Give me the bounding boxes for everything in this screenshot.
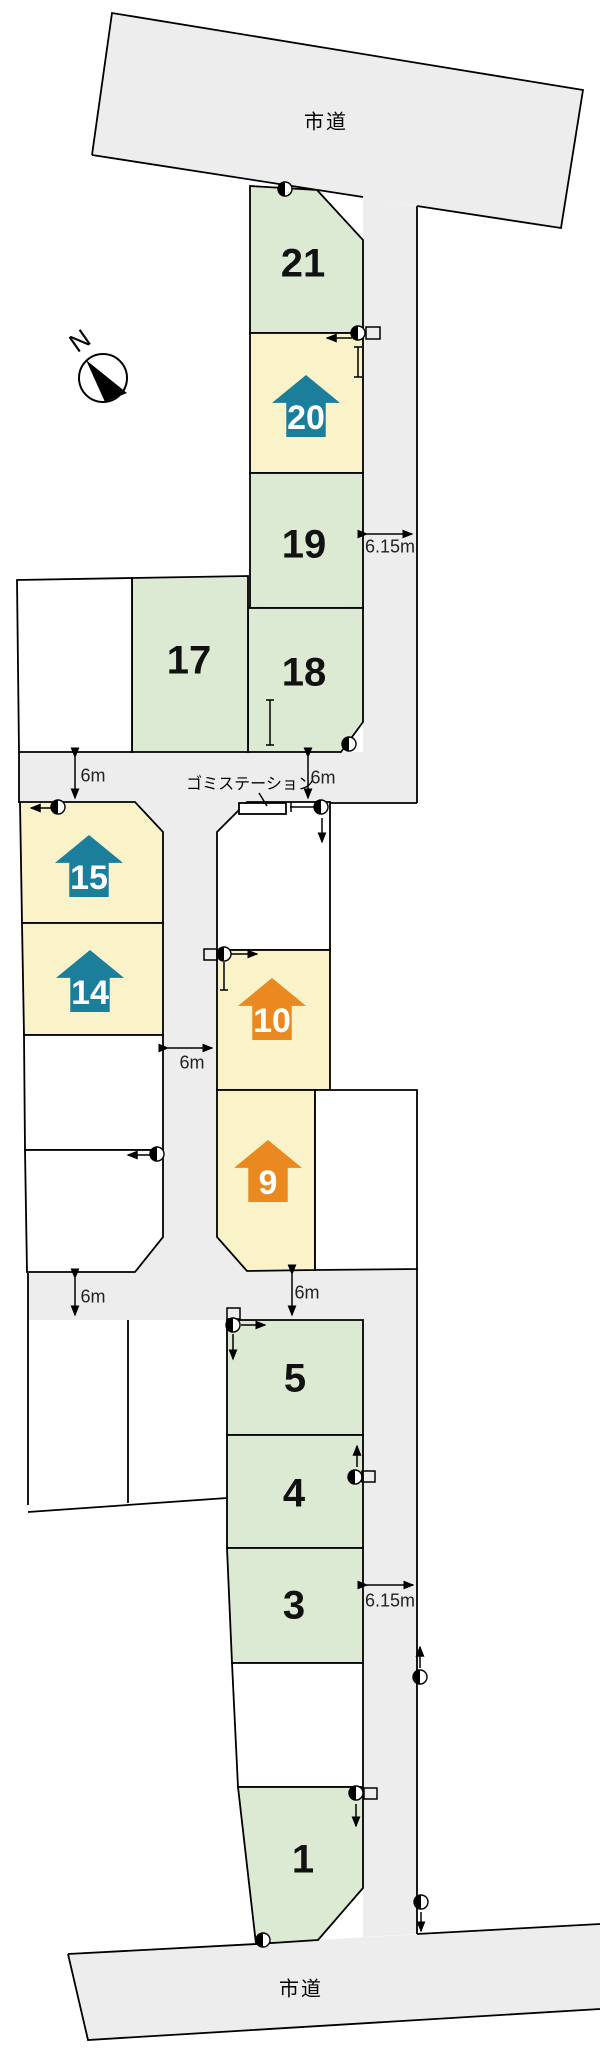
garbage-station-label: ゴミステーション — [186, 770, 314, 794]
lots-layer — [17, 186, 417, 1944]
lot3-number: 3 — [283, 1584, 305, 1629]
lot1-number: 1 — [292, 1838, 314, 1883]
lot18-number: 18 — [282, 651, 327, 696]
upper-road-width-label: 6.15m — [365, 537, 415, 558]
manhole-icon — [217, 947, 231, 961]
manhole-icon — [351, 326, 365, 340]
lower-vertical-road — [363, 1320, 417, 1937]
unnumbered-lot-below-14-upper — [24, 1035, 163, 1150]
site-plan: 市道 市道 N ゴミステーション 21 19 18 17 5 4 3 1 20 … — [0, 0, 600, 2057]
manhole-icon — [342, 737, 356, 751]
lower-road-width-label: 6.15m — [365, 1591, 415, 1612]
site-plan-drawing — [0, 0, 600, 2057]
manhole-icon — [226, 1318, 240, 1332]
manhole-icon — [51, 800, 65, 814]
unnumbered-lot-below-14-lower — [25, 1150, 163, 1272]
bottom-road-label: 市道 — [279, 1973, 323, 2002]
middle-road-width-label: 6m — [179, 1053, 204, 1074]
lot17-number: 17 — [167, 639, 212, 684]
lot21-number: 21 — [281, 242, 326, 287]
unnumbered-lot-west-of-17 — [17, 578, 132, 752]
unnumbered-lot-above-1 — [232, 1663, 363, 1787]
lot5-number: 5 — [284, 1357, 306, 1402]
unnumbered-lot-east-of-9 — [315, 1090, 417, 1270]
lot19-number: 19 — [282, 523, 327, 568]
manhole-icon — [150, 1147, 164, 1161]
lower-band-left-label: 6m — [80, 1287, 105, 1308]
upper-band-left-label: 6m — [80, 766, 105, 787]
lower-band-right-label: 6m — [294, 1283, 319, 1304]
manhole-icon — [314, 800, 328, 814]
garbage-station-box — [239, 803, 286, 814]
lot4-number: 4 — [283, 1472, 305, 1517]
manhole-icon — [278, 182, 292, 196]
upper-vertical-road — [363, 197, 417, 803]
manhole-icon — [349, 1786, 363, 1800]
manhole-icon — [414, 1895, 428, 1909]
unnumbered-lot-garbage-station — [217, 802, 330, 950]
upper-band-right-label: 6m — [310, 768, 335, 789]
manhole-icon — [413, 1670, 427, 1684]
manhole-icon — [348, 1470, 362, 1484]
bottom-city-road — [68, 1924, 600, 2040]
manhole-icon — [256, 1933, 270, 1947]
top-road-label: 市道 — [304, 106, 348, 135]
compass-rose — [79, 354, 127, 402]
